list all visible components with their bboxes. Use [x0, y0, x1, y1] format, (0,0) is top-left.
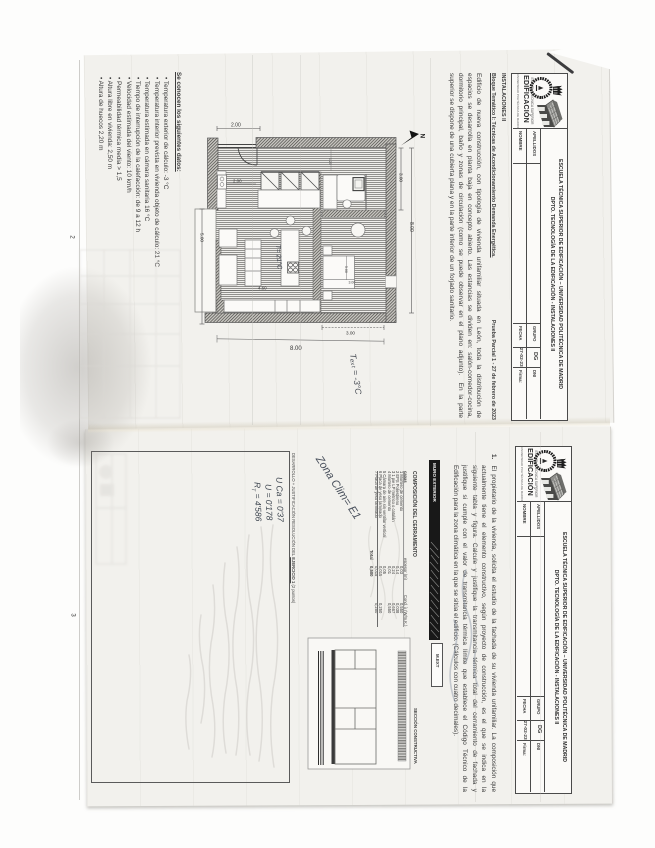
svg-text:Tₑₓₜ ≈ -3°C: Tₑₓₜ ≈ -3°C	[348, 353, 364, 396]
svg-text:3.00: 3.00	[346, 331, 355, 336]
svg-text:3.00: 3.00	[349, 280, 356, 284]
svg-text:3.00: 3.00	[399, 173, 404, 182]
svg-text:2.00: 2.00	[233, 179, 242, 184]
svg-text:2.00: 2.00	[231, 123, 241, 129]
svg-text:8.00: 8.00	[408, 222, 414, 232]
svg-text:5.00: 5.00	[344, 266, 348, 273]
svg-text:5.00: 5.00	[200, 233, 205, 242]
svg-text:N: N	[419, 134, 426, 139]
svg-text:1.20: 1.20	[328, 158, 332, 165]
svg-text:4.60: 4.60	[258, 286, 267, 291]
